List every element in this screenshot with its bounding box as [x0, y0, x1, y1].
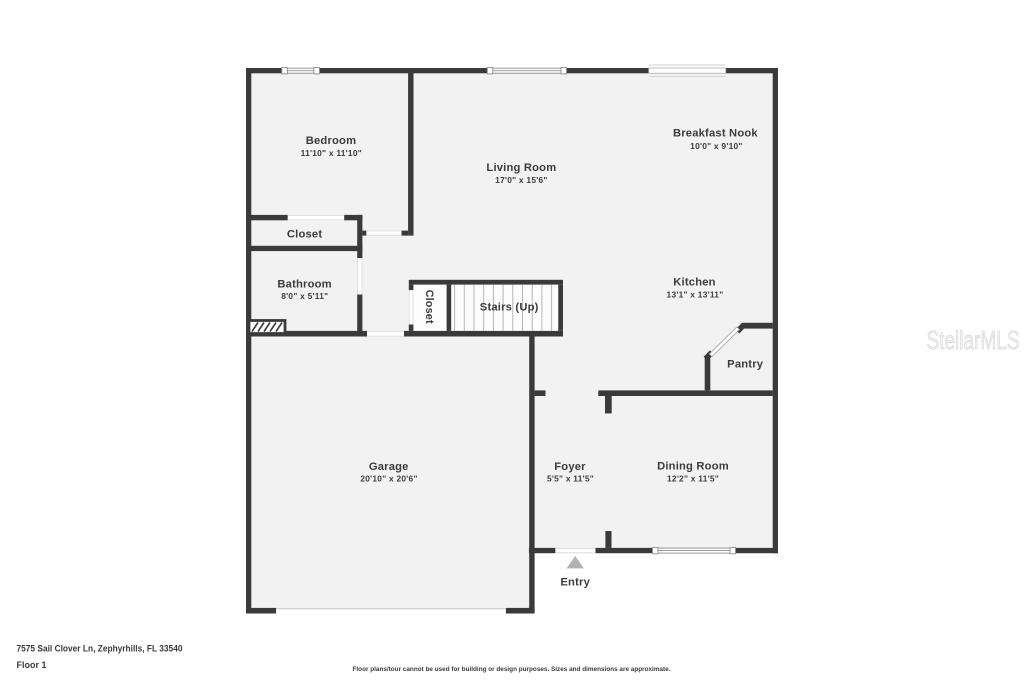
svg-text:10'0" x 9'10": 10'0" x 9'10" — [690, 141, 742, 151]
svg-text:7575 Sail Clover Ln, Zephyrhil: 7575 Sail Clover Ln, Zephyrhills, FL 335… — [17, 644, 183, 655]
svg-text:Dining Room: Dining Room — [657, 461, 729, 473]
svg-text:Kitchen: Kitchen — [673, 277, 715, 289]
svg-text:Foyer: Foyer — [554, 461, 586, 473]
svg-text:Floor 1: Floor 1 — [17, 660, 48, 671]
svg-text:Entry: Entry — [560, 576, 590, 588]
svg-text:11'10" x 11'10": 11'10" x 11'10" — [301, 148, 362, 158]
svg-text:17'0" x 15'6": 17'0" x 15'6" — [495, 175, 547, 185]
svg-text:Floor plans/tour cannot be use: Floor plans/tour cannot be used for buil… — [353, 666, 671, 673]
svg-text:Closet: Closet — [287, 229, 322, 241]
svg-text:12'2" x 11'5": 12'2" x 11'5" — [667, 474, 719, 484]
svg-text:Pantry: Pantry — [727, 359, 764, 371]
svg-text:8'0" x 5'11": 8'0" x 5'11" — [281, 291, 328, 301]
svg-text:Stairs (Up): Stairs (Up) — [480, 301, 539, 313]
svg-text:Breakfast Nook: Breakfast Nook — [673, 128, 758, 140]
svg-text:Garage: Garage — [369, 461, 409, 473]
svg-text:20'10" x 20'6": 20'10" x 20'6" — [360, 474, 417, 484]
svg-text:Living Room: Living Room — [486, 162, 556, 174]
svg-text:Closet: Closet — [423, 290, 435, 324]
svg-text:Bedroom: Bedroom — [306, 135, 357, 147]
svg-text:Bathroom: Bathroom — [277, 278, 331, 290]
svg-text:13'1" x 13'11": 13'1" x 13'11" — [667, 290, 724, 300]
svg-text:5'5" x 11'5": 5'5" x 11'5" — [547, 474, 594, 484]
svg-text:StellarMLS: StellarMLS — [927, 325, 1020, 355]
